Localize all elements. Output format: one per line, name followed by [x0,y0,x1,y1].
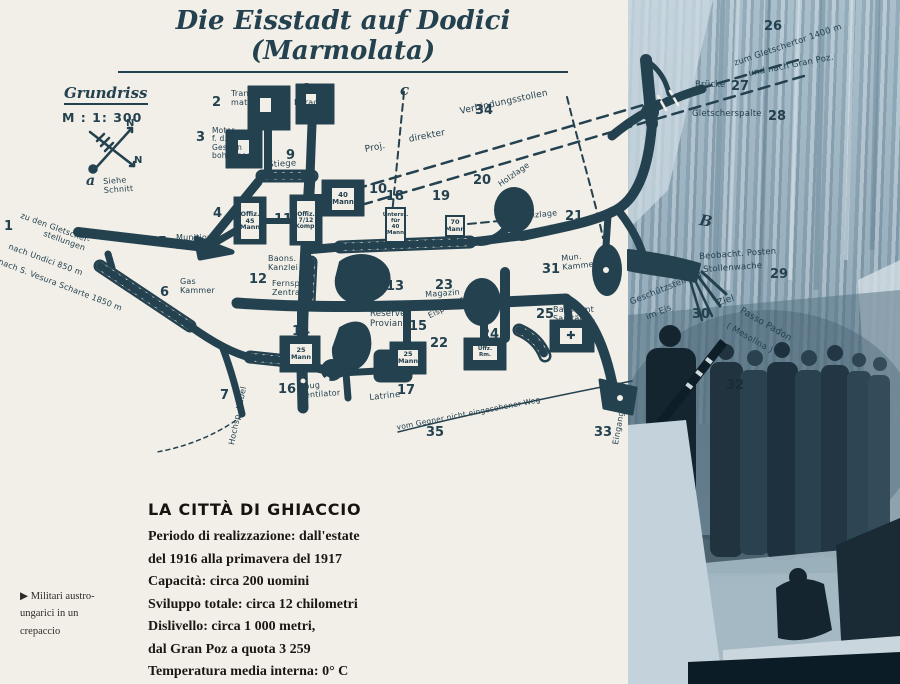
note-line: crepaccio [20,623,132,640]
caption-block: LA CITTÀ DI GHIACCIO Periodo di realizza… [148,500,483,684]
chamber-box: 40Mann [330,186,356,212]
chamber-box: Offiz.45Mann [239,201,261,241]
chamber-box: ✚ [558,326,584,346]
map-title: Die Eisstadt auf Dodici (Marmolata) [118,6,568,73]
compass-n-label: N [134,155,142,166]
caption-line: Dislivello: circa 1 000 metri, [148,616,483,639]
chamber-box: Unterst.für 40Mann [385,207,406,243]
caption-line: Sviluppo totale: circa 12 chilometri [148,594,483,617]
note-arrow-icon: ▶ [20,591,28,602]
legend-title: Grundriss [64,84,148,105]
chamber-box: 25Mann [288,342,314,366]
chamber-box: 25Mann [396,348,420,368]
chamber-box [236,138,251,156]
photo-credit-note: ▶ Militari austro-ungarici in uncrepacci… [20,588,132,640]
note-line: Militari austro- [31,591,95,602]
caption-line: del 1916 alla primavera del 1917 [148,549,483,572]
note-text: Militari austro-ungarici in uncrepaccio [20,591,132,640]
caption-line: Periodo di realizzazione: dall'estate [148,526,483,549]
chamber-box: Uffz.Rm. [471,344,499,362]
chamber-box: 70Mann [445,215,465,237]
note-line: ungarici in un [20,605,132,622]
chamber-box: Offiz.7/12Komp. [295,199,317,243]
compass-n-label: N [126,118,134,129]
caption-line: Temperatura media interna: 0° C [148,661,483,684]
chamber-box [304,92,318,106]
caption-heading: LA CITTÀ DI GHIACCIO [148,500,483,519]
page: 40MannOffiz.45MannOffiz.7/12Komp.Unterst… [0,0,900,684]
caption-line: Capacità: circa 200 uomini [148,571,483,594]
caption-line: dal Gran Poz a quota 3 259 [148,639,483,662]
chamber-box [258,96,273,114]
caption-lines: Periodo di realizzazione: dall'estatedel… [148,526,483,684]
